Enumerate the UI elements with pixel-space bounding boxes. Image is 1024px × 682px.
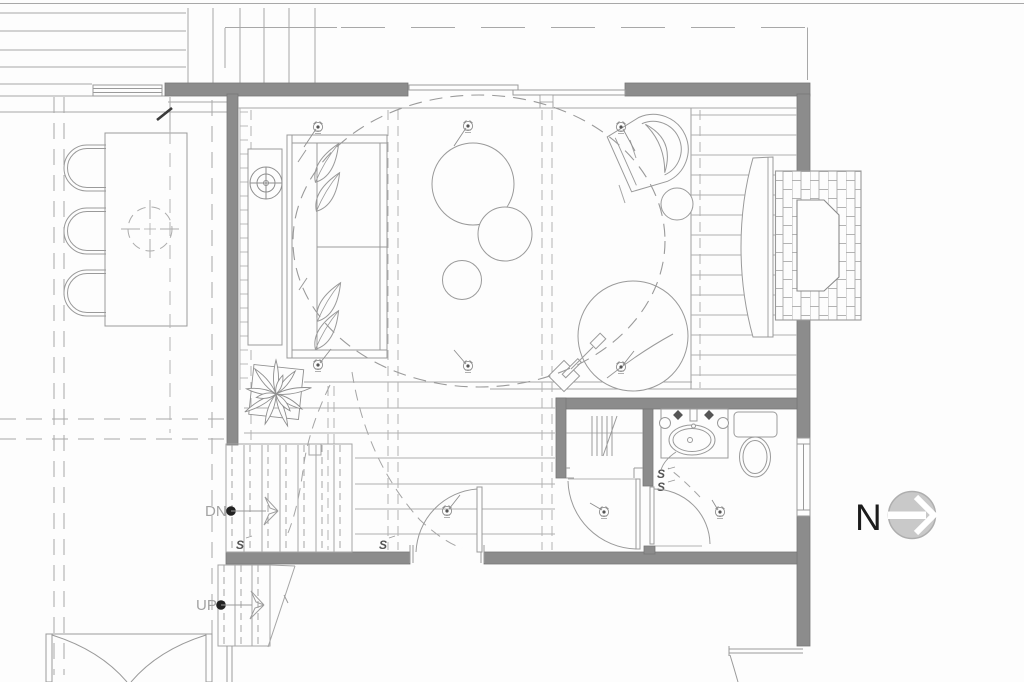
svg-text:N: N [855, 497, 882, 538]
svg-text:S: S [379, 538, 387, 552]
svg-text:S: S [236, 538, 244, 552]
svg-text:DN: DN [205, 503, 227, 520]
svg-text:S: S [657, 480, 665, 494]
svg-text:UP: UP [196, 597, 217, 614]
